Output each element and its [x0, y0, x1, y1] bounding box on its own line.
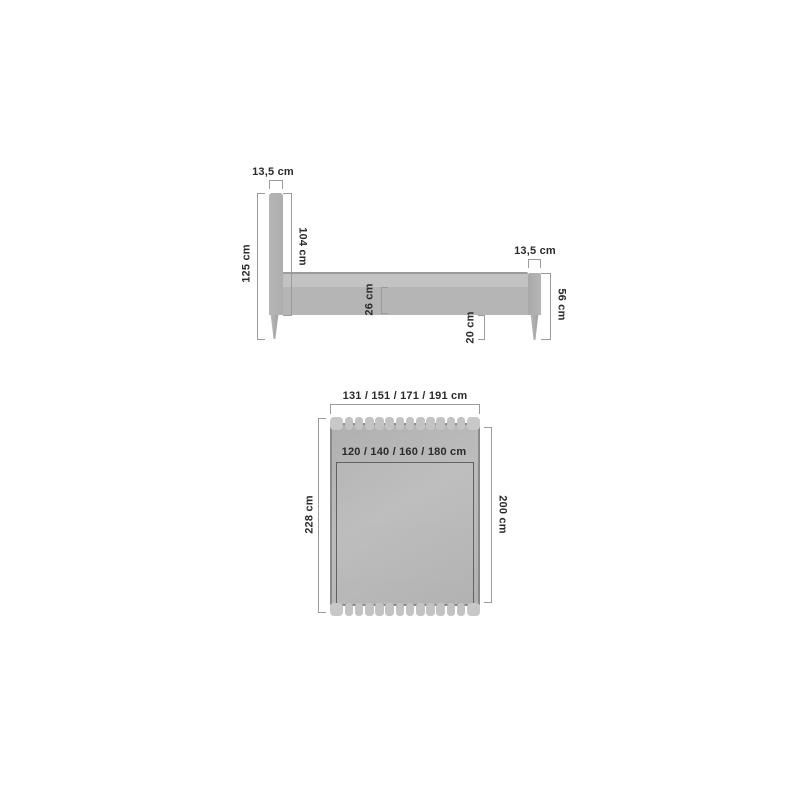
dim-label-footboard-height: 56 cm — [555, 275, 568, 335]
tufting-pill — [426, 603, 435, 616]
tufting-pill — [365, 603, 374, 616]
dim-label-headboard-width: 13,5 cm — [243, 166, 303, 179]
dim-bracket-leg-height — [478, 315, 485, 340]
dim-label-leg-height: 20 cm — [465, 298, 478, 358]
tufting-pill — [375, 603, 384, 616]
tufting-pill — [467, 603, 480, 616]
dim-bracket-total-height — [257, 193, 265, 340]
tufting-pill — [436, 417, 445, 430]
tufting-pill — [447, 603, 456, 616]
dim-bracket-frame-length — [318, 418, 326, 613]
tufting-pill — [406, 417, 415, 430]
headboard-side — [269, 193, 283, 315]
tufting-pill — [447, 417, 456, 430]
dim-bracket-frame-height — [381, 287, 388, 314]
footboard-tufting — [330, 603, 480, 616]
tufting-pill — [345, 417, 354, 430]
headboard-tufting — [330, 417, 480, 430]
tufting-pill — [396, 417, 405, 430]
dim-label-footboard-width: 13,5 cm — [505, 245, 565, 258]
footboard-side — [528, 273, 541, 315]
tufting-pill — [345, 603, 354, 616]
tufting-pill — [426, 417, 435, 430]
dim-bracket-mattress-length — [484, 427, 492, 603]
dim-bracket-headboard-width — [269, 180, 283, 189]
bed-dimensions-diagram: 13,5 cm 125 cm 104 cm 26 cm 20 cm 13,5 c… — [0, 0, 800, 800]
dim-label-mattress-length: 200 cm — [496, 485, 509, 545]
tufting-pill — [330, 417, 343, 430]
dim-label-frame-height: 26 cm — [364, 270, 377, 330]
rear-leg — [530, 315, 539, 340]
dim-bracket-footboard-width — [528, 259, 541, 268]
tufting-pill — [406, 603, 415, 616]
tufting-pill — [396, 603, 405, 616]
tufting-pill — [436, 603, 445, 616]
tufting-pill — [467, 417, 480, 430]
dim-label-headboard-height: 104 cm — [296, 217, 309, 277]
tufting-pill — [457, 603, 466, 616]
tufting-pill — [355, 417, 364, 430]
tufting-pill — [385, 417, 394, 430]
dim-label-total-height: 125 cm — [241, 234, 254, 294]
mattress-edge-side — [283, 272, 528, 287]
mattress-area-top — [336, 462, 474, 604]
tufting-pill — [365, 417, 374, 430]
bed-frame-side — [283, 287, 528, 315]
tufting-pill — [457, 417, 466, 430]
tufting-pill — [330, 603, 343, 616]
dim-bracket-headboard-height — [283, 193, 292, 316]
dim-label-mattress-widths: 120 / 140 / 160 / 180 cm — [324, 446, 484, 459]
dim-label-frame-length: 228 cm — [304, 485, 317, 545]
tufting-pill — [355, 603, 364, 616]
tufting-pill — [375, 417, 384, 430]
tufting-pill — [385, 603, 394, 616]
tufting-pill — [416, 417, 425, 430]
front-leg — [270, 315, 279, 339]
tufting-pill — [416, 603, 425, 616]
dim-bracket-frame-widths — [330, 404, 480, 414]
dim-label-frame-widths: 131 / 151 / 171 / 191 cm — [325, 390, 485, 403]
dim-bracket-footboard-height — [541, 273, 551, 340]
